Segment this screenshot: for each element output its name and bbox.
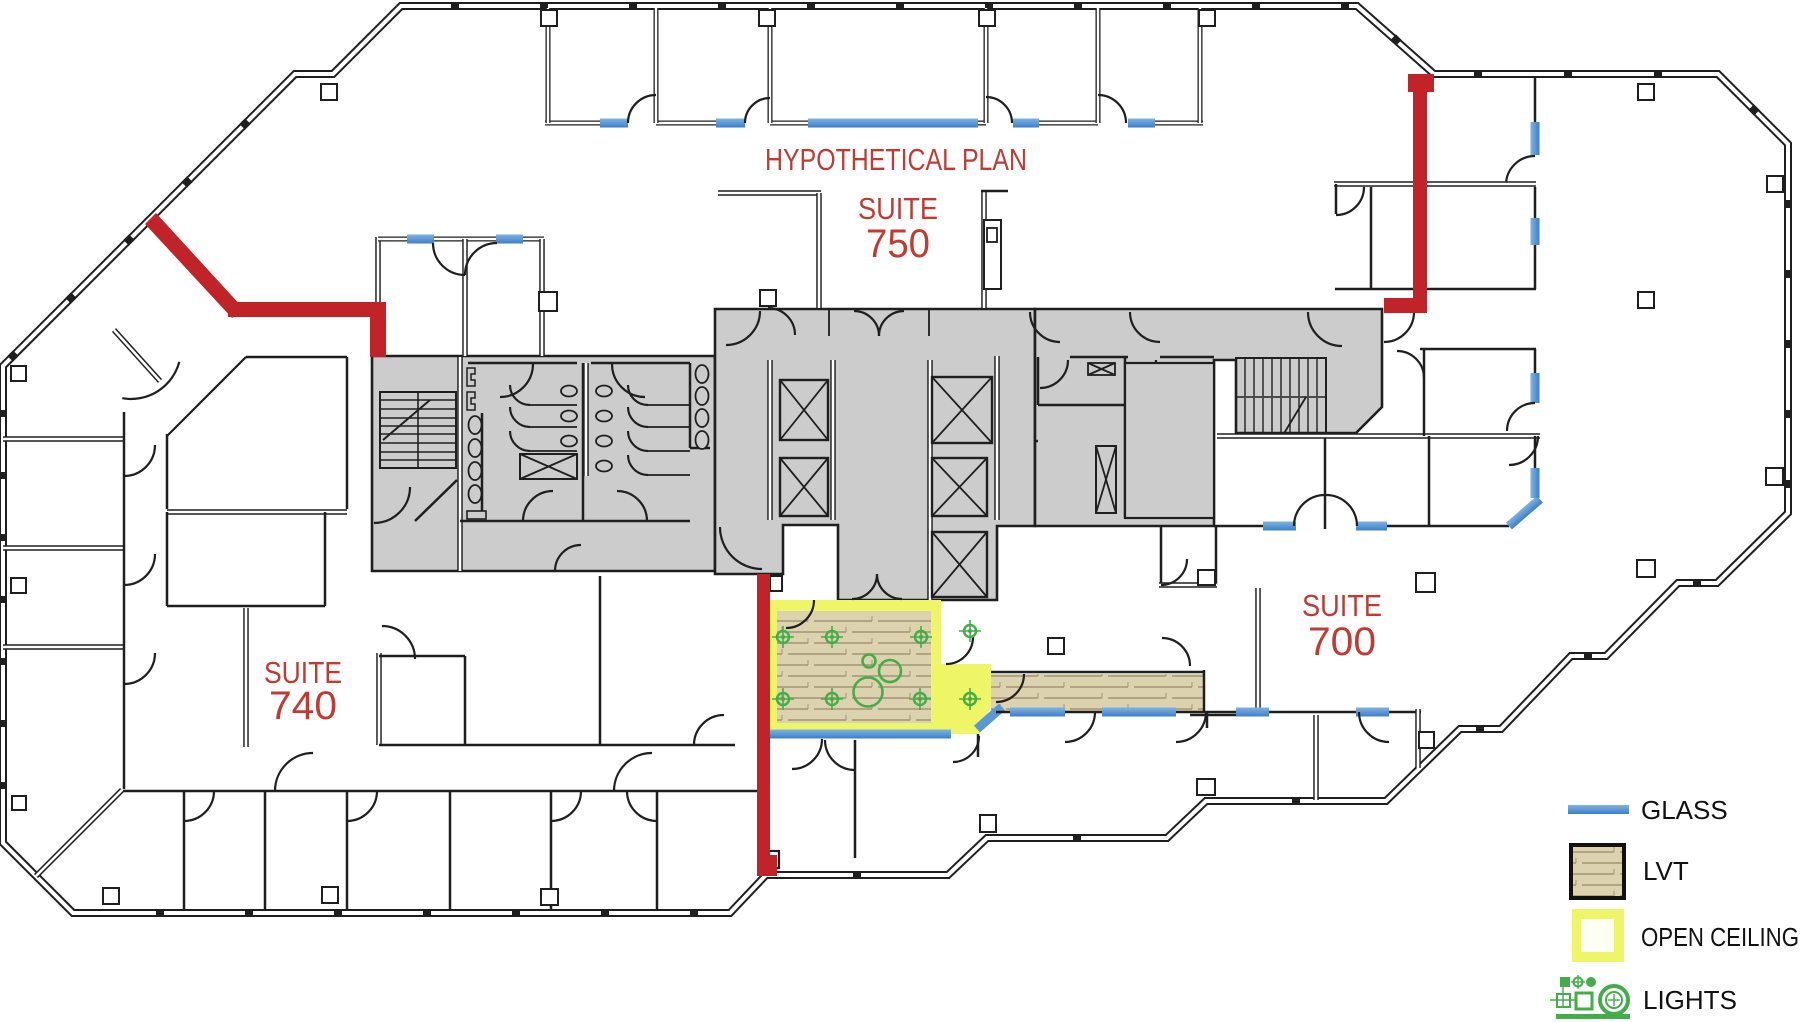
- svg-text:LIGHTS: LIGHTS: [1643, 985, 1737, 1015]
- svg-text:SUITE: SUITE: [1302, 588, 1382, 623]
- svg-text:HYPOTHETICAL PLAN: HYPOTHETICAL PLAN: [765, 142, 1027, 177]
- svg-text:LVT: LVT: [1643, 856, 1689, 886]
- svg-text:OPEN CEILING: OPEN CEILING: [1641, 922, 1799, 952]
- svg-text:750: 750: [866, 222, 930, 266]
- svg-text:740: 740: [269, 684, 337, 728]
- svg-text:GLASS: GLASS: [1641, 795, 1728, 825]
- svg-text:SUITE: SUITE: [858, 191, 938, 226]
- svg-text:700: 700: [1308, 620, 1376, 664]
